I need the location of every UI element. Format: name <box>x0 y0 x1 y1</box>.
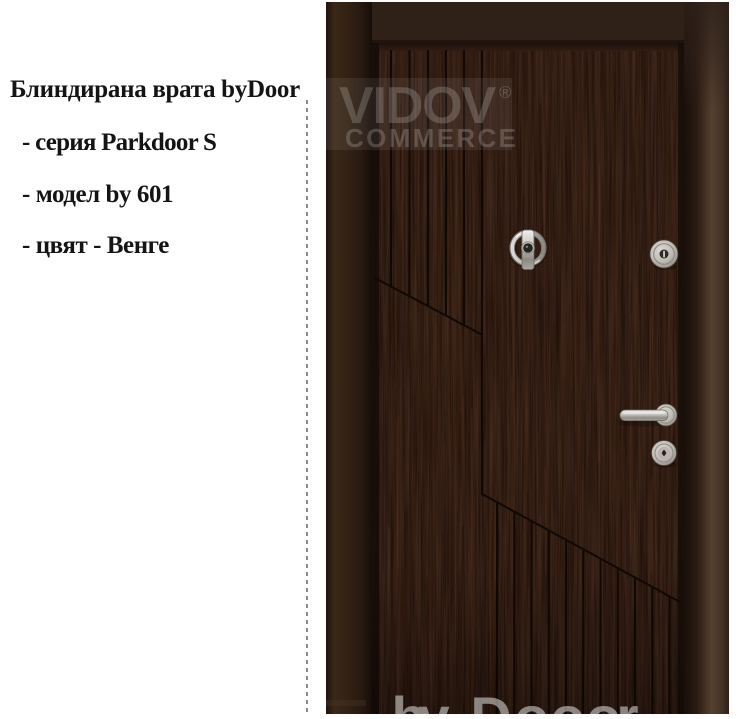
svg-text:y: y <box>418 686 450 715</box>
svg-text:D: D <box>470 686 511 715</box>
svg-text:o: o <box>514 686 549 715</box>
svg-text:r: r <box>616 686 638 715</box>
svg-text:®: ® <box>499 83 512 102</box>
svg-text:o: o <box>550 686 585 715</box>
svg-text:COMMERCE: COMMERCE <box>345 123 516 153</box>
